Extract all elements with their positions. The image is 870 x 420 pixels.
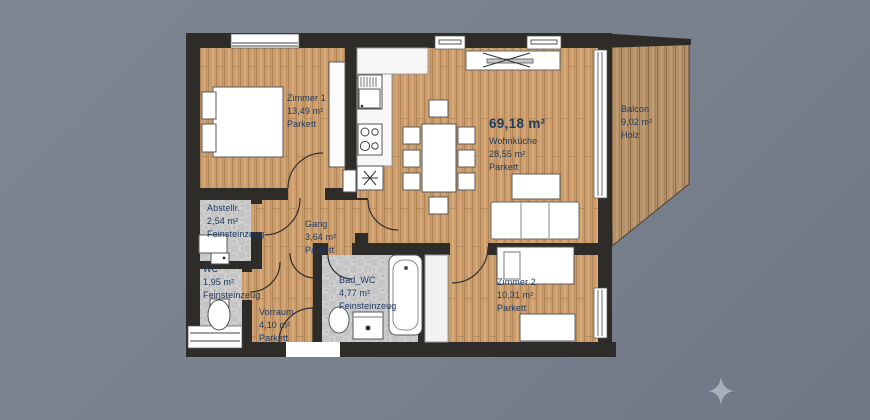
kitchen-counter-top [357,48,428,74]
balcony-door-window [594,50,607,198]
bed-zimmer-1 [213,87,283,157]
coffee-table [512,174,560,199]
fridge [358,75,382,109]
room-area: 28,55 m² [489,148,545,161]
window-living-top [527,36,561,49]
opening-zimmer-1 [288,188,325,200]
room-floor-type: Feinsteinzeug [203,289,260,302]
room-label-zimmer-1: Zimmer 1 13,49 m² Parkett [287,92,326,131]
washing-machine [353,312,383,339]
total-area-value: 69,18 m² [489,116,545,131]
wall-below-zimmer1 [200,188,357,200]
room-name: Vorraum [259,306,294,319]
room-floor-type: Parkett [259,332,294,345]
room-name: Balcon [621,103,652,116]
room-name: Wohnküche [489,135,545,148]
window-zimmer-1 [231,34,299,48]
room-area: 13,49 m² [287,105,326,118]
room-floor-type: Feinsteinzeug [207,228,264,241]
wall-zimmer1-kitchen [345,48,357,190]
floor-balcony [608,38,689,246]
room-name: Abstellr. [207,202,264,215]
room-label-gang: Gang 3,64 m² Parkett [305,218,336,257]
room-label-wohnkueche: 69,18 m² Wohnküche 28,55 m² Parkett [489,116,545,174]
kitchen-symbol-box [357,166,383,190]
room-name: Zimmer 1 [287,92,326,105]
stove [358,124,382,155]
room-name: Gang [305,218,336,231]
room-name: Zimmer 2 [497,276,536,289]
room-area: 1,95 m² [203,276,260,289]
compass-star-icon [708,377,734,405]
room-area: 9,02 m² [621,116,652,129]
room-area: 3,64 m² [305,231,336,244]
room-name: Bad_WC [339,274,396,287]
room-floor-type: Feinsteinzeug [339,300,396,313]
wardrobe-zimmer-1 [329,62,345,167]
room-floor-type: Parkett [305,244,336,257]
room-label-wc: WC 1,95 m² Feinsteinzeug [203,263,260,302]
sideboard [466,51,560,70]
room-label-abstellraum: Abstellr. 2,54 m² Feinsteinzeug [207,202,264,241]
room-area: 10,31 m² [497,289,536,302]
sofa [491,202,579,239]
opening-zimmer-2 [450,243,488,255]
shaft-box [343,170,356,192]
window-kitchen [435,36,465,49]
wall-left [186,33,200,357]
wall-bottom [186,342,616,357]
room-name: WC [203,263,260,276]
nightstand-1 [202,92,216,119]
room-label-bad-wc: Bad_WC 4,77 m² Feinsteinzeug [339,274,396,313]
wall-badwc-left [313,243,322,342]
dresser-zimmer-2 [520,314,575,341]
room-area: 4,77 m² [339,287,396,300]
floor-plan-drawing [0,0,870,420]
room-area: 2,54 m² [207,215,264,228]
dining-table [422,124,456,192]
window-zimmer-2 [594,288,607,338]
nightstand-2 [202,124,216,152]
room-floor-type: Holz [621,129,652,142]
room-area: 4,10 m² [259,319,294,332]
room-label-balcon: Balcon 9,02 m² Holz [621,103,652,142]
room-floor-type: Parkett [497,302,536,315]
room-floor-type: Parkett [287,118,326,131]
room-label-vorraum: Vorraum 4,10 m² Parkett [259,306,294,345]
closet-zimmer-2 [425,255,448,342]
opening-entrance [286,342,340,357]
room-label-zimmer-2: Zimmer 2 10,31 m² Parkett [497,276,536,315]
room-floor-type: Parkett [489,161,545,174]
floor-plan-page: Zimmer 1 13,49 m² Parkett 69,18 m² Wohnk… [0,0,870,420]
opening-gang-living [355,200,368,233]
